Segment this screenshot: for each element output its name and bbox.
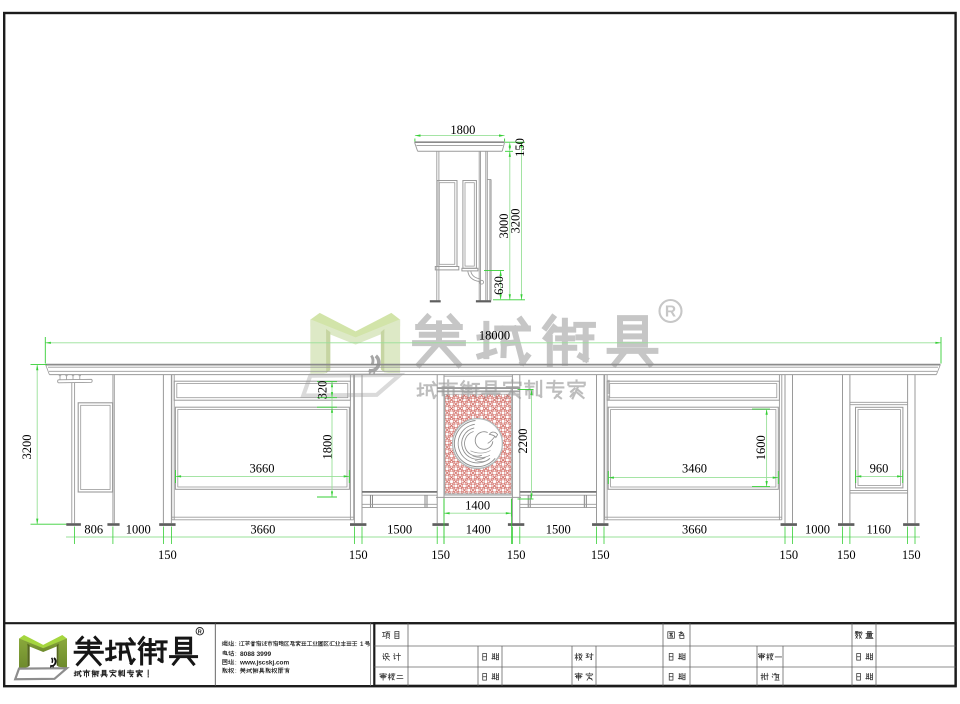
svg-text:960: 960 xyxy=(870,461,889,475)
svg-text:1000: 1000 xyxy=(126,523,151,537)
svg-text:150: 150 xyxy=(591,548,610,562)
svg-text:150: 150 xyxy=(513,138,527,157)
svg-text:150: 150 xyxy=(507,548,526,562)
svg-text:1500: 1500 xyxy=(546,523,571,537)
svg-text:1600: 1600 xyxy=(754,435,768,460)
svg-text:3460: 3460 xyxy=(682,461,707,475)
svg-text:3660: 3660 xyxy=(250,461,275,475)
svg-text:18000: 18000 xyxy=(479,328,510,342)
svg-text:R: R xyxy=(665,304,676,321)
svg-text:630: 630 xyxy=(492,276,506,295)
svg-text:320: 320 xyxy=(316,381,330,400)
svg-text:150: 150 xyxy=(431,548,450,562)
svg-text:150: 150 xyxy=(837,548,856,562)
svg-text:3660: 3660 xyxy=(682,523,707,537)
svg-text:1800: 1800 xyxy=(450,123,475,137)
svg-text:1160: 1160 xyxy=(867,523,892,537)
svg-text:806: 806 xyxy=(84,523,103,537)
svg-text:1000: 1000 xyxy=(805,523,830,537)
svg-text:150: 150 xyxy=(349,548,368,562)
svg-text:1400: 1400 xyxy=(465,499,490,513)
svg-text:3660: 3660 xyxy=(250,523,275,537)
svg-text:150: 150 xyxy=(902,548,921,562)
svg-text:3200: 3200 xyxy=(20,435,34,460)
svg-text:3200: 3200 xyxy=(509,209,523,234)
svg-text:1800: 1800 xyxy=(321,435,335,460)
svg-text:2200: 2200 xyxy=(516,429,530,454)
svg-text:1500: 1500 xyxy=(387,523,412,537)
svg-text:www.jscskj.com: www.jscskj.com xyxy=(239,660,289,667)
svg-text:R: R xyxy=(198,629,202,635)
svg-text:150: 150 xyxy=(779,548,798,562)
svg-text:150: 150 xyxy=(158,548,177,562)
svg-text:8088 3999: 8088 3999 xyxy=(240,651,272,658)
svg-text:1400: 1400 xyxy=(466,523,491,537)
